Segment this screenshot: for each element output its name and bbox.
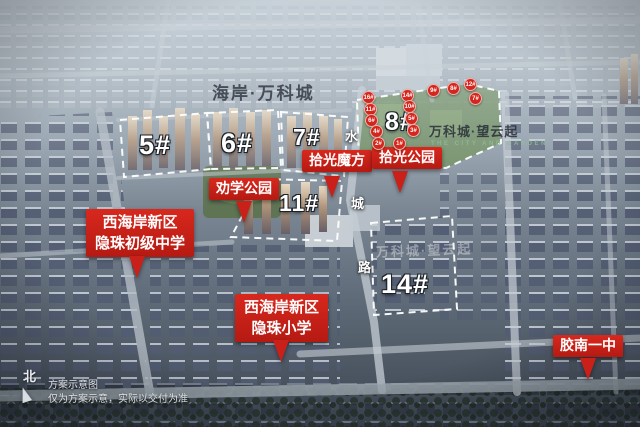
building-marker: 8#: [447, 82, 460, 95]
pointer-arrow-yinzhu-middle-school: [129, 256, 145, 278]
parcel-label-14: 14#: [381, 271, 429, 298]
project-watermark-en: THE CITY AND GARDEN: [431, 141, 548, 147]
building-marker: 2#: [372, 137, 385, 150]
parcel-label-7: 7#: [293, 126, 321, 149]
disclaimer-line1: 方案示意图: [48, 381, 98, 391]
building-marker: 4#: [370, 125, 383, 138]
pointer-arrow-quanxue-park: [236, 201, 252, 223]
badge-shiguang-mofang: 拾光魔方: [302, 150, 372, 172]
building-marker: 3#: [407, 124, 420, 137]
pointer-arrow-shiguang-park: [392, 171, 408, 193]
badge-shiguang-park: 拾光公园: [372, 147, 442, 169]
badge-yinzhu-primary-school-line1: 西海岸新区: [244, 297, 319, 318]
project-watermark-faint: 万科城·望云起: [376, 242, 473, 258]
building-marker: 16#: [362, 91, 375, 104]
building-marker: 7#: [469, 92, 482, 105]
building-marker: 5#: [405, 112, 418, 125]
building-marker: 12#: [464, 78, 477, 91]
badge-yinzhu-primary-school: 西海岸新区 隐珠小学: [235, 294, 328, 342]
badge-quanxue-park: 劝学公园: [209, 178, 279, 200]
building-marker: 10#: [403, 100, 416, 113]
badge-yinzhu-middle-school-line2: 隐珠初级中学: [95, 233, 185, 254]
aerial-masterplan-image: 海岸·万科城 万科城·望云起 THE CITY AND GARDEN 万科城·望…: [0, 0, 640, 427]
road-name-char-1: 水: [345, 130, 358, 143]
badge-jiaonan-no1-school: 胶南一中: [553, 335, 623, 357]
road-name-char-2: 城: [351, 197, 364, 210]
parcel-label-5: 5#: [139, 132, 171, 159]
badge-yinzhu-middle-school: 西海岸新区 隐珠初级中学: [86, 209, 194, 257]
project-watermark: 万科城·望云起: [429, 125, 518, 138]
estate-watermark: 海岸·万科城: [212, 85, 315, 102]
disclaimer-line2: 仅为方案示意，实际以交付为准: [48, 395, 188, 405]
badge-yinzhu-middle-school-line1: 西海岸新区: [95, 212, 185, 233]
parcel-label-6: 6#: [221, 130, 253, 157]
road-name-char-3: 路: [358, 261, 371, 274]
building-marker: 1#: [393, 137, 406, 150]
parcel-label-11: 11#: [279, 192, 319, 215]
building-marker: 9#: [427, 84, 440, 97]
pointer-arrow-yinzhu-primary-school: [273, 340, 289, 362]
badge-yinzhu-primary-school-line2: 隐珠小学: [244, 318, 319, 339]
pointer-arrow-jiaonan-no1-school: [580, 358, 596, 380]
pointer-arrow-shiguang-mofang: [324, 176, 340, 198]
compass-north-label: 北: [23, 370, 36, 383]
